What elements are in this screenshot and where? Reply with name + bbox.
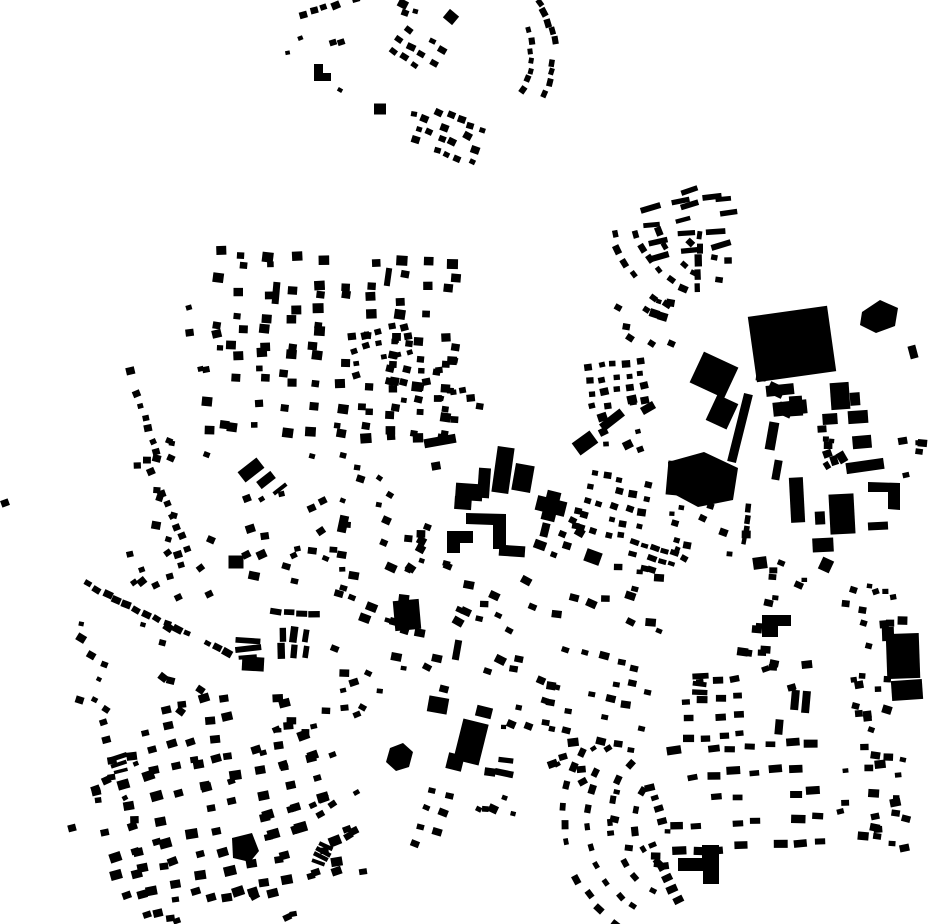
building (772, 595, 779, 600)
building (855, 710, 863, 717)
building (812, 813, 823, 820)
building (684, 715, 694, 721)
building (451, 273, 461, 282)
building (454, 496, 472, 510)
building (341, 290, 351, 299)
building (609, 361, 616, 367)
building (823, 461, 832, 470)
building (251, 422, 258, 428)
building (595, 500, 603, 507)
building (815, 511, 826, 525)
building (146, 467, 156, 476)
building (422, 310, 430, 317)
building (865, 642, 873, 649)
building (682, 699, 690, 705)
building (791, 815, 806, 824)
building (422, 377, 432, 386)
building (459, 387, 467, 394)
building (99, 718, 108, 726)
building (584, 804, 592, 813)
building (769, 567, 777, 573)
building (376, 502, 383, 508)
building (400, 270, 409, 279)
building (625, 617, 636, 627)
building (434, 147, 442, 154)
building (136, 889, 148, 899)
building (339, 452, 347, 459)
building (690, 352, 739, 399)
building (417, 409, 424, 415)
building (205, 716, 216, 725)
building (376, 688, 383, 693)
building (417, 356, 425, 363)
building (348, 678, 359, 687)
building (713, 677, 723, 684)
building (899, 757, 906, 763)
building (359, 868, 368, 875)
building (404, 535, 413, 543)
building (131, 869, 143, 880)
building (668, 561, 676, 567)
building (615, 487, 624, 495)
building (122, 795, 129, 802)
building (588, 691, 596, 697)
building (637, 371, 643, 377)
building (655, 628, 662, 635)
building (762, 615, 791, 637)
building (336, 428, 347, 438)
building (480, 601, 489, 608)
building (287, 717, 297, 724)
building (628, 679, 638, 687)
building (248, 571, 260, 581)
building (763, 599, 773, 608)
building (158, 639, 166, 646)
building (692, 689, 708, 695)
building (285, 50, 290, 55)
building (91, 585, 101, 595)
building (173, 789, 183, 798)
building (875, 686, 882, 692)
building (860, 744, 869, 750)
building (790, 791, 802, 798)
building (616, 477, 623, 483)
building (528, 37, 535, 45)
building (648, 841, 657, 849)
building (626, 384, 635, 392)
building (638, 725, 646, 732)
building (385, 411, 394, 419)
building (305, 427, 316, 437)
building (611, 919, 621, 924)
building (235, 637, 260, 644)
building (607, 830, 614, 836)
building (195, 685, 206, 695)
building (210, 753, 222, 763)
building (206, 535, 216, 544)
building (632, 806, 639, 814)
building (745, 503, 751, 512)
building (406, 349, 413, 355)
building (614, 303, 623, 312)
building (864, 765, 873, 772)
building (404, 25, 414, 34)
building (258, 496, 265, 503)
building (765, 421, 780, 450)
building (697, 696, 708, 703)
building (720, 209, 738, 217)
building (678, 230, 696, 236)
building (804, 740, 818, 748)
building (280, 628, 287, 642)
building (602, 878, 610, 887)
building (724, 746, 734, 752)
building (245, 523, 256, 533)
building (337, 404, 349, 415)
building (174, 593, 183, 602)
building (697, 231, 703, 240)
building (601, 714, 609, 720)
building (614, 564, 623, 571)
building (141, 610, 152, 620)
building (336, 550, 346, 559)
building (152, 614, 162, 623)
building (870, 812, 880, 820)
building (642, 306, 651, 314)
building (588, 843, 595, 851)
building (163, 721, 174, 731)
building (482, 806, 489, 812)
building (518, 85, 527, 95)
building (548, 59, 555, 67)
building (881, 704, 892, 715)
building (588, 402, 596, 409)
building (625, 333, 635, 343)
building (452, 155, 461, 164)
building (631, 586, 639, 593)
building (567, 738, 579, 748)
building (849, 586, 858, 594)
building (398, 594, 409, 603)
building (166, 454, 175, 463)
building (520, 575, 533, 587)
building (423, 523, 432, 531)
building (374, 328, 382, 335)
building (258, 878, 269, 887)
building (655, 266, 663, 274)
building (233, 288, 243, 296)
building (694, 254, 702, 266)
building (617, 659, 626, 666)
building (347, 332, 356, 340)
building (561, 726, 571, 734)
building (353, 789, 361, 796)
building (647, 339, 656, 348)
building (396, 255, 408, 266)
building (562, 780, 570, 790)
building (100, 661, 108, 669)
building (592, 861, 600, 869)
building (636, 445, 644, 453)
building (749, 770, 759, 776)
building (280, 874, 293, 885)
building (384, 617, 391, 623)
building (309, 453, 316, 459)
building (211, 827, 221, 836)
building (586, 377, 594, 384)
building (711, 254, 718, 261)
building (706, 228, 726, 235)
building (822, 413, 838, 425)
building (443, 283, 453, 292)
map-canvas (0, 0, 930, 924)
building (701, 735, 711, 742)
building (406, 42, 417, 52)
building (289, 626, 299, 643)
building (328, 834, 343, 847)
building (340, 704, 349, 711)
building (514, 655, 524, 663)
building (190, 887, 201, 896)
building (405, 340, 413, 347)
building (404, 332, 413, 340)
building (396, 298, 405, 306)
building (400, 323, 409, 332)
building (524, 74, 532, 83)
building (673, 537, 680, 544)
building (427, 695, 449, 714)
building (272, 694, 283, 702)
building (603, 441, 609, 446)
building (386, 743, 413, 771)
building (279, 369, 288, 377)
building (75, 695, 85, 704)
building (636, 357, 644, 364)
building (584, 889, 594, 900)
building (637, 508, 647, 517)
building (708, 745, 720, 753)
building (726, 766, 740, 775)
building (308, 801, 317, 809)
building (711, 239, 732, 251)
building (828, 493, 855, 534)
building (870, 751, 881, 760)
building (752, 556, 768, 570)
building (223, 865, 237, 877)
building (400, 666, 406, 671)
building (134, 462, 141, 468)
building (685, 238, 695, 248)
building (645, 618, 656, 627)
building (286, 805, 296, 814)
building (551, 610, 562, 619)
building (165, 536, 172, 543)
building (422, 804, 430, 811)
building (511, 463, 534, 493)
building (901, 814, 911, 823)
building (891, 809, 900, 817)
building (422, 662, 432, 671)
building (221, 647, 233, 658)
building (587, 483, 594, 489)
building (443, 151, 451, 158)
building (890, 594, 897, 600)
building (447, 259, 458, 269)
building (429, 38, 437, 45)
building (150, 790, 164, 803)
building (462, 131, 473, 141)
building (546, 78, 554, 87)
building (440, 412, 452, 423)
building (893, 795, 900, 800)
building (318, 496, 328, 505)
building (237, 252, 245, 259)
building (91, 696, 99, 703)
building (285, 780, 296, 790)
building (418, 558, 425, 564)
building (854, 680, 864, 689)
building (587, 784, 597, 795)
building (418, 368, 425, 374)
building (915, 440, 921, 445)
building (312, 303, 323, 313)
building (790, 690, 800, 711)
building (563, 838, 569, 845)
building (585, 598, 598, 609)
building (375, 340, 382, 346)
building (528, 68, 534, 75)
building (260, 532, 269, 540)
building (319, 3, 327, 11)
building (352, 371, 361, 380)
building (435, 367, 443, 374)
building (584, 823, 590, 830)
building (414, 395, 423, 404)
building (226, 340, 236, 349)
building (494, 654, 507, 666)
building (560, 803, 566, 811)
building (612, 244, 622, 255)
building (718, 527, 728, 537)
building (114, 767, 128, 774)
building (424, 257, 434, 266)
building (166, 738, 178, 748)
building (632, 230, 640, 239)
building (339, 497, 346, 503)
building (613, 774, 623, 785)
building (768, 764, 782, 773)
building (562, 820, 569, 829)
building (402, 365, 411, 373)
building (307, 547, 317, 555)
building (431, 461, 441, 470)
building (651, 794, 660, 801)
building (584, 364, 592, 372)
building (431, 654, 443, 664)
building (131, 605, 141, 614)
building (569, 593, 580, 602)
building (126, 551, 134, 558)
building (716, 695, 726, 702)
building (524, 722, 534, 731)
building (177, 561, 185, 568)
building (151, 521, 161, 530)
building (159, 862, 169, 870)
building (450, 416, 458, 423)
building (622, 360, 631, 368)
building (726, 551, 732, 556)
building (264, 833, 273, 841)
building (692, 673, 709, 680)
building (469, 158, 476, 165)
building (793, 839, 807, 848)
building (666, 299, 676, 308)
building (358, 612, 371, 624)
building (680, 261, 689, 270)
building (475, 615, 483, 622)
building (203, 451, 211, 458)
building (644, 689, 652, 696)
building (217, 345, 223, 351)
building (138, 566, 145, 573)
building (644, 783, 655, 792)
building (261, 374, 270, 382)
building (294, 545, 301, 552)
building (348, 571, 359, 580)
building (288, 343, 297, 351)
building (572, 430, 599, 455)
building (111, 595, 122, 605)
building (362, 342, 371, 350)
building (96, 676, 102, 682)
building (657, 817, 668, 825)
building (428, 787, 436, 794)
building (539, 522, 550, 538)
building (415, 543, 426, 554)
building (842, 768, 848, 773)
building (666, 275, 676, 284)
building (143, 457, 151, 464)
building (627, 747, 634, 753)
building (143, 424, 152, 432)
building (624, 591, 636, 602)
building (845, 458, 884, 474)
building (391, 403, 400, 412)
building (419, 114, 429, 124)
building (873, 826, 882, 833)
building (852, 435, 872, 450)
building (622, 439, 634, 451)
building (384, 561, 397, 573)
building (229, 556, 244, 569)
building (227, 797, 237, 805)
building (484, 767, 496, 776)
building (670, 822, 683, 830)
building (185, 329, 194, 337)
building (535, 0, 544, 8)
building (221, 893, 233, 903)
building (591, 767, 600, 777)
building (515, 704, 522, 710)
building (915, 448, 923, 455)
building (628, 550, 637, 557)
building (185, 304, 192, 310)
building (622, 323, 630, 330)
building (330, 644, 340, 653)
building (337, 87, 343, 93)
building (882, 589, 888, 594)
building (372, 259, 381, 267)
